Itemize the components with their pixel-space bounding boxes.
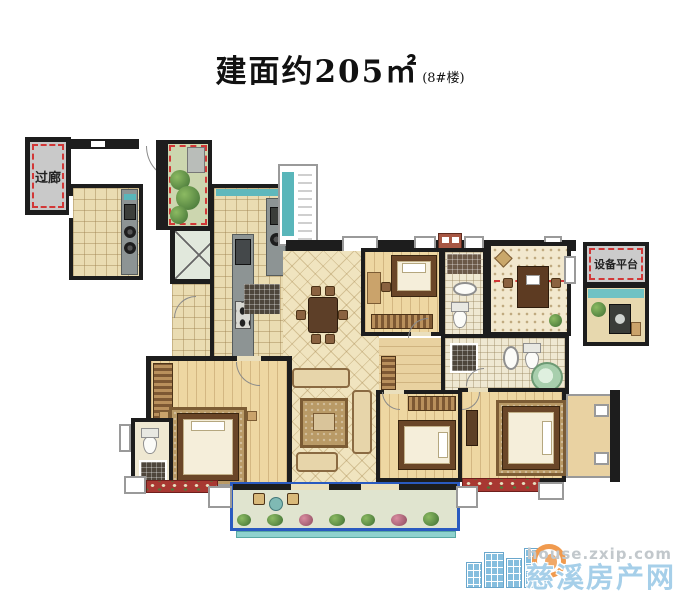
- door-gap: [69, 196, 73, 218]
- flower-icon: [391, 514, 407, 526]
- living-rug: [300, 398, 348, 448]
- building-icon: [484, 552, 504, 588]
- chair: [381, 282, 391, 292]
- chair: [311, 334, 321, 344]
- wardrobe: [408, 396, 456, 411]
- door-gap: [361, 484, 399, 490]
- chair: [296, 310, 306, 320]
- entry-garden: [164, 140, 212, 230]
- dining-set: [298, 288, 348, 342]
- window: [564, 256, 576, 284]
- ac-unit-icon: [187, 147, 205, 173]
- bed: [502, 406, 560, 470]
- washer-door: [615, 314, 625, 324]
- bed: [177, 413, 239, 481]
- plant-icon: [237, 514, 251, 526]
- watermark-site-name: 慈溪房产网: [526, 556, 676, 595]
- toilet-icon: [451, 302, 469, 328]
- room-bathroom-south: [441, 334, 569, 396]
- door-gap: [237, 356, 261, 361]
- desk: [367, 272, 381, 304]
- chair: [253, 493, 265, 505]
- desk: [517, 266, 549, 308]
- chair: [503, 278, 513, 288]
- room-bathroom-north: [441, 248, 487, 338]
- room-study: [487, 242, 571, 336]
- chair: [287, 493, 299, 505]
- building-icon: [466, 562, 482, 588]
- chair: [325, 334, 335, 344]
- dining-table: [308, 297, 338, 333]
- window: [538, 482, 564, 500]
- chair: [311, 286, 321, 296]
- armchair: [296, 452, 338, 472]
- wall: [610, 390, 620, 482]
- window-pane: [452, 237, 459, 243]
- plant-icon: [549, 314, 562, 327]
- shower-icon: [450, 343, 478, 373]
- wardrobe: [381, 356, 396, 390]
- sink-icon: [124, 194, 136, 200]
- bay-window: [566, 394, 612, 478]
- bed: [398, 420, 456, 470]
- fridge-icon: [235, 239, 251, 265]
- window-hatch: [298, 170, 312, 240]
- corridor-dashed-outline: [32, 144, 64, 208]
- plant-icon: [170, 206, 188, 224]
- kitchen-counter: [121, 189, 138, 275]
- stove-burner-icon: [124, 226, 136, 238]
- wall: [233, 484, 457, 490]
- chair: [338, 310, 348, 320]
- dresser: [466, 410, 478, 446]
- balcony-edge: [236, 531, 456, 538]
- equipment-dashed-outline: [589, 248, 643, 280]
- desk-paper: [526, 275, 540, 285]
- hallway: [379, 338, 443, 392]
- window-glass: [282, 172, 294, 236]
- sink-icon: [453, 282, 477, 296]
- equipment-platform-room: [583, 284, 649, 346]
- window: [119, 424, 131, 452]
- area-title: 建面约205㎡: [215, 54, 418, 90]
- sink-icon: [503, 346, 519, 370]
- window-pane: [594, 452, 609, 465]
- window: [124, 476, 146, 494]
- appliance-icon: [124, 204, 136, 220]
- room-corridor: 过廊: [25, 137, 71, 215]
- chair: [551, 278, 561, 288]
- small-rug: [494, 249, 512, 267]
- building-icon: [506, 558, 522, 588]
- patio-table: [269, 497, 283, 511]
- sofa: [352, 390, 372, 454]
- plant-icon: [267, 514, 283, 526]
- plant-icon: [361, 514, 375, 526]
- plant-icon: [591, 302, 606, 317]
- bay-window: [278, 164, 318, 246]
- window: [208, 486, 232, 508]
- kitchen-dark-tile: [244, 284, 280, 314]
- flower-icon: [299, 514, 313, 526]
- floorplan-page: 建面约205㎡(8#楼) 过廊: [0, 0, 680, 595]
- coffee-table: [313, 413, 335, 431]
- nightstand: [247, 411, 257, 421]
- toilet-icon: [141, 428, 159, 454]
- bed: [391, 255, 437, 297]
- kitchen-window-sill: [216, 189, 286, 196]
- wall: [69, 139, 139, 149]
- building-number: (8#楼): [422, 71, 464, 86]
- balcony: [230, 482, 460, 531]
- chair: [325, 286, 335, 296]
- cabinet: [631, 322, 641, 336]
- wall-notch: [91, 141, 105, 147]
- shower-tile: [447, 254, 481, 274]
- sofa: [292, 368, 350, 388]
- plant-icon: [329, 514, 345, 526]
- window-pane: [442, 237, 449, 243]
- plant-icon: [423, 512, 439, 526]
- window-pane: [594, 404, 609, 417]
- room-side-kitchen: [69, 184, 143, 280]
- equipment-platform-box: 设备平台: [583, 242, 649, 286]
- page-title: 建面约205㎡(8#楼): [0, 46, 680, 91]
- window-glass: [588, 289, 644, 298]
- door-gap: [291, 484, 329, 490]
- room-bedroom-north: [361, 248, 443, 336]
- washer-icon: [609, 304, 631, 334]
- window: [456, 486, 478, 508]
- stove-burner-icon: [124, 242, 136, 254]
